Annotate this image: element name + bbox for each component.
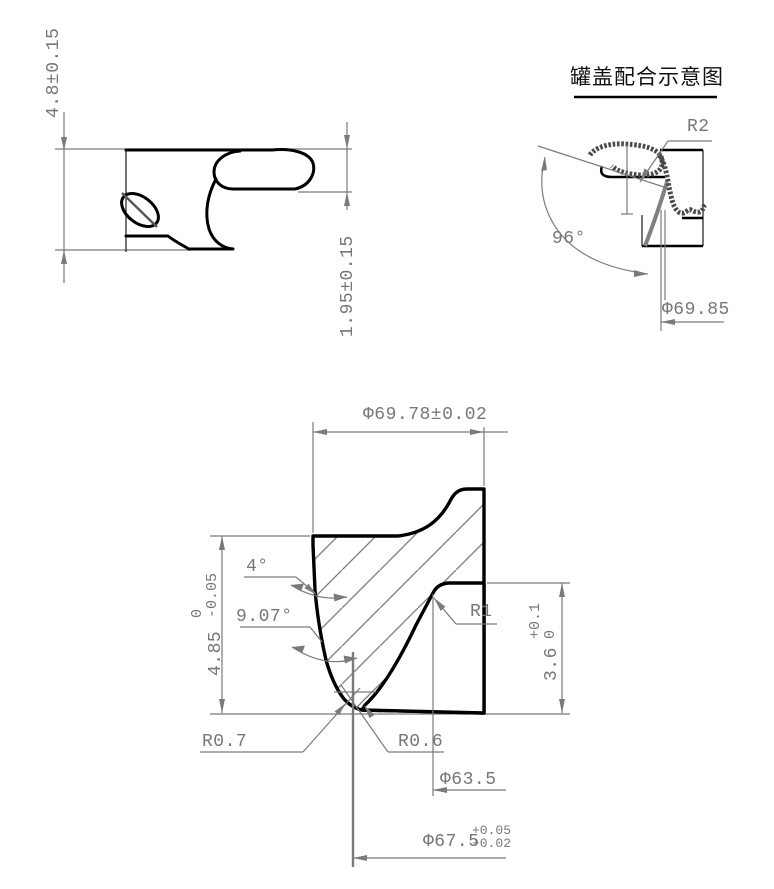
arrowhead (219, 536, 225, 550)
arrowhead (61, 250, 67, 264)
height-right-tol-lower: 0 (542, 630, 559, 639)
r06-label: R0.6 (398, 732, 443, 752)
arrowhead (559, 583, 565, 597)
dia-6985-label: Φ69.85 (662, 300, 730, 320)
dia-635-label: Φ63.5 (440, 770, 497, 790)
arrowhead (291, 584, 304, 592)
curl-height-dim-text: 1.95±0.15 (338, 235, 358, 337)
r2-label: R2 (687, 117, 710, 137)
view-title: 罐盖配合示意图 (570, 66, 724, 89)
top-diameter-text: Φ69.78±0.02 (363, 405, 487, 425)
lid-panel-step (126, 236, 189, 249)
r07-label: R0.7 (202, 732, 247, 752)
height-left-tol-lower: -0.05 (204, 573, 221, 618)
arrowhead (313, 429, 327, 435)
r1-label: R1 (470, 602, 493, 622)
lid-height-dim-text: 4.8±0.15 (44, 28, 64, 118)
lid-profile-view: 4.8±0.15 1.95±0.15 (44, 28, 358, 337)
lid-curl (214, 150, 314, 189)
arrowhead (344, 135, 350, 149)
lid-wall-section (659, 155, 706, 213)
fit-schematic-view: 罐盖配合示意图 R2 96° Φ69.85 (538, 66, 730, 331)
angle-907-label: 9.07° (236, 607, 293, 627)
angle-arc (542, 157, 648, 274)
height-right-main: 3.6 (542, 647, 562, 681)
drawing-page: 4.8±0.15 1.95±0.15 罐盖配合示意图 (0, 0, 774, 889)
bead-slash (122, 193, 157, 227)
arrowhead (634, 270, 648, 277)
leader-line (303, 688, 360, 752)
die-section-view: Φ69.78±0.02 4.85 0 -0.05 4° 9.07° R1 (189, 405, 570, 867)
arrowhead (219, 699, 225, 713)
height-left-main: 4.85 (206, 631, 226, 676)
angle-4-label: 4° (246, 557, 269, 577)
angle-ray (538, 146, 667, 188)
can-body-wall (645, 182, 667, 246)
arrowhead (353, 855, 367, 861)
engineering-drawing: 4.8±0.15 1.95±0.15 罐盖配合示意图 (0, 0, 774, 889)
arrowhead (344, 192, 350, 206)
arrowhead (292, 646, 305, 654)
dia-675-tol-lower: +0.02 (472, 836, 511, 851)
arrowhead (559, 699, 565, 713)
arrowhead (470, 429, 484, 435)
angle-96-label: 96° (552, 229, 586, 249)
